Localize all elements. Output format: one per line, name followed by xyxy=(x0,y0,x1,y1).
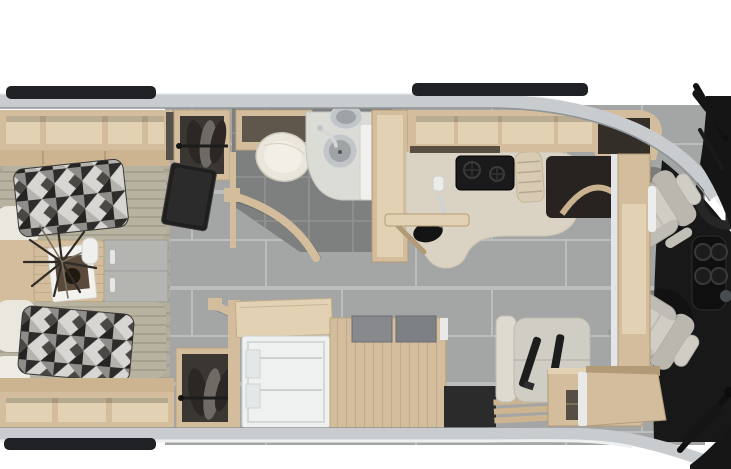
drawer-handle xyxy=(110,278,115,292)
vanity-counter xyxy=(306,105,376,200)
cup-holder xyxy=(711,244,727,260)
twin-bed-top xyxy=(0,158,166,250)
cup-holder xyxy=(695,268,711,284)
geometric-pillow-bottom xyxy=(17,305,135,383)
door-bin xyxy=(246,384,260,408)
awning-rail-top-rear xyxy=(6,86,156,99)
geometric-pillow-top xyxy=(13,158,130,237)
counter-flap xyxy=(235,298,332,337)
cab-pillar-trim xyxy=(611,154,656,382)
center-console-cupholders xyxy=(692,236,731,310)
two-burner-cooktop xyxy=(456,156,514,190)
floorplan-canvas: Top-down 3D rendered floor plan of a mot… xyxy=(0,0,731,469)
refrigerator xyxy=(242,336,330,428)
overhead-cubbies-top xyxy=(0,110,172,166)
entry-well xyxy=(444,386,496,428)
soap-dispenser xyxy=(433,176,444,191)
door-pivot xyxy=(224,188,240,202)
drawer-handle xyxy=(110,250,115,264)
awning-rail-bottom xyxy=(4,438,156,450)
bench-edge xyxy=(0,378,174,392)
side-shelf xyxy=(0,240,36,304)
island-top-panel xyxy=(352,316,392,342)
door-pivot xyxy=(208,298,222,310)
dish-towel xyxy=(514,151,544,203)
awning-rail-top-front xyxy=(412,83,588,96)
island-top-panel xyxy=(396,316,436,342)
plant-vase xyxy=(82,238,98,264)
bench-backrest xyxy=(496,316,516,402)
foot-storage-cubbies xyxy=(0,378,174,428)
cab-overhead-cabinet-bottom xyxy=(578,366,666,426)
rv-floorplan-render: Top-down 3D rendered floor plan of a mot… xyxy=(0,0,731,469)
island-cabinet xyxy=(330,316,448,428)
partition-wall xyxy=(372,110,408,262)
door-bin xyxy=(246,350,260,378)
cup-holder xyxy=(711,268,727,284)
cup-holder xyxy=(695,244,711,260)
cabinet-gap xyxy=(166,112,174,160)
